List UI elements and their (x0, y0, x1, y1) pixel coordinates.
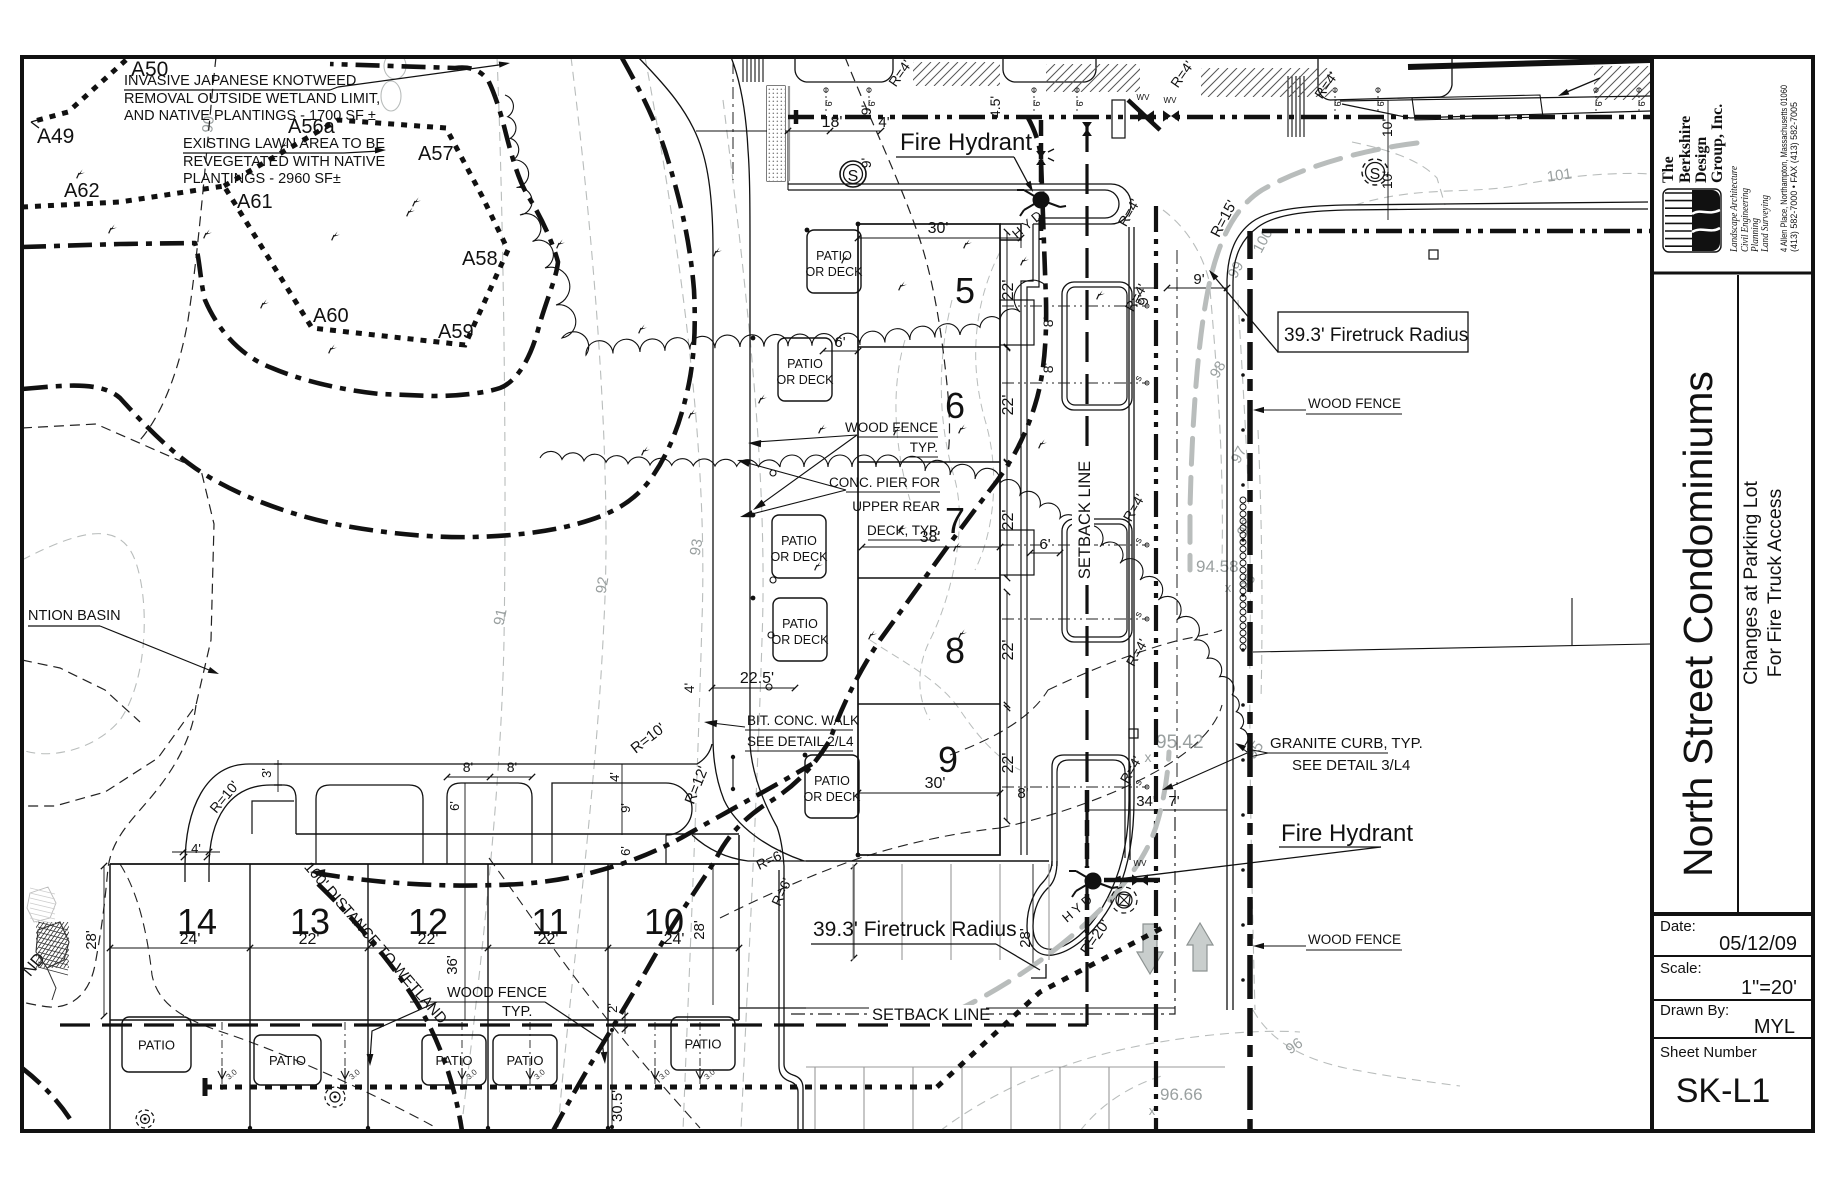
svg-text:PATIO: PATIO (816, 249, 852, 263)
svg-text:28': 28' (691, 920, 708, 940)
svg-text:39.3' Firetruck Radius: 39.3' Firetruck Radius (1284, 325, 1468, 346)
svg-text:22': 22' (1000, 510, 1017, 531)
svg-text:Date:: Date: (1660, 918, 1696, 935)
svg-text:OR DECK: OR DECK (771, 550, 829, 564)
svg-text:REMOVAL OUTSIDE WETLAND LIMIT,: REMOVAL OUTSIDE WETLAND LIMIT, (124, 91, 380, 107)
svg-text:8': 8' (463, 759, 473, 775)
svg-text:MYL: MYL (1754, 1016, 1795, 1038)
svg-text:4': 4' (681, 683, 697, 693)
svg-text:PATIO: PATIO (269, 1053, 306, 1068)
svg-text:10': 10' (1379, 119, 1395, 137)
svg-text:101: 101 (1546, 165, 1573, 185)
svg-text:96.66: 96.66 (1160, 1085, 1203, 1104)
svg-text:6': 6' (618, 846, 633, 856)
svg-text:22': 22' (1000, 280, 1017, 301)
svg-text:30': 30' (925, 775, 946, 792)
svg-text:3': 3' (259, 768, 274, 778)
svg-text:NTION BASIN: NTION BASIN (28, 608, 121, 624)
svg-text:22': 22' (299, 931, 320, 948)
svg-text:PATIO: PATIO (787, 357, 823, 371)
svg-text:DECK, TYP.: DECK, TYP. (867, 523, 940, 538)
svg-text:9': 9' (858, 105, 874, 115)
svg-text:4': 4' (191, 841, 201, 856)
svg-text:The: The (1660, 156, 1677, 183)
svg-text:SETBACK LINE: SETBACK LINE (872, 1006, 990, 1024)
svg-text:30': 30' (928, 220, 949, 237)
svg-text:OR DECK: OR DECK (804, 790, 862, 804)
svg-text:OR DECK: OR DECK (777, 373, 835, 387)
svg-text:22': 22' (538, 931, 559, 948)
svg-text:UPPER REAR: UPPER REAR (852, 499, 940, 514)
svg-text:22': 22' (1000, 753, 1017, 774)
svg-text:TYP.: TYP. (910, 440, 938, 455)
svg-text:22': 22' (418, 931, 439, 948)
svg-text:WOOD FENCE: WOOD FENCE (447, 985, 547, 1001)
svg-text:8': 8' (1017, 785, 1028, 802)
svg-text:10': 10' (1379, 171, 1395, 189)
svg-text:A59: A59 (438, 321, 474, 343)
svg-text:05/12/09: 05/12/09 (1719, 933, 1797, 955)
svg-text:TYP.: TYP. (502, 1004, 532, 1020)
svg-text:WOOD FENCE: WOOD FENCE (1308, 932, 1401, 947)
svg-text:WV: WV (1164, 96, 1178, 105)
svg-text:94.58: 94.58 (1196, 557, 1239, 576)
svg-text:93: 93 (687, 538, 707, 557)
svg-text:28': 28' (83, 930, 100, 950)
svg-text:Changes at Parking Lot: Changes at Parking Lot (1740, 481, 1762, 685)
svg-text:39.3' Firetruck Radius: 39.3' Firetruck Radius (813, 918, 1017, 941)
svg-text:PLANTINGS - 2960 SF±: PLANTINGS - 2960 SF± (183, 171, 341, 187)
svg-text:22': 22' (1000, 395, 1017, 416)
svg-text:INVASIVE JAPANESE KNOTWEED: INVASIVE JAPANESE KNOTWEED (124, 73, 356, 89)
svg-text:95.42: 95.42 (1156, 732, 1204, 753)
svg-text:Fire Hydrant: Fire Hydrant (1281, 820, 1413, 847)
svg-text:BIT. CONC. WALK: BIT. CONC. WALK (747, 713, 859, 728)
svg-text:6': 6' (447, 801, 462, 811)
svg-text:PATIO: PATIO (814, 774, 850, 788)
svg-text:A62: A62 (64, 180, 100, 202)
svg-text:OR DECK: OR DECK (806, 265, 864, 279)
svg-text:6': 6' (834, 334, 845, 351)
svg-text:A57: A57 (418, 143, 454, 165)
svg-text:22': 22' (1000, 640, 1017, 661)
svg-text:9': 9' (1193, 271, 1204, 288)
svg-text:PATIO: PATIO (684, 1037, 721, 1052)
svg-text:Sheet Number: Sheet Number (1660, 1044, 1757, 1061)
svg-text:4.5': 4.5' (987, 96, 1003, 118)
svg-text:Group, Inc.: Group, Inc. (1709, 104, 1726, 183)
svg-text:CONC. PIER FOR: CONC. PIER FOR (829, 475, 940, 490)
svg-text:6': 6' (1032, 99, 1042, 106)
svg-text:REVEGETATED WITH NATIVE: REVEGETATED WITH NATIVE (183, 154, 386, 170)
svg-text:SK-L1: SK-L1 (1676, 1072, 1771, 1110)
svg-text:1"=20': 1"=20' (1741, 977, 1797, 999)
svg-text:S: S (1370, 166, 1381, 183)
svg-text:5: 5 (955, 270, 975, 311)
svg-text:EXISTING LAWN AREA TO BE: EXISTING LAWN AREA TO BE (183, 136, 385, 152)
svg-text:Berkshire: Berkshire (1677, 116, 1694, 183)
svg-text:2': 2' (605, 1003, 620, 1013)
svg-text:WOOD FENCE: WOOD FENCE (845, 420, 938, 435)
svg-text:6': 6' (824, 99, 834, 106)
svg-text:S: S (848, 168, 859, 185)
svg-text:8': 8' (507, 759, 517, 775)
svg-text:A58: A58 (462, 248, 498, 270)
svg-text:6': 6' (1637, 99, 1647, 106)
svg-text:x: x (1145, 749, 1152, 765)
svg-text:WV: WV (1137, 93, 1151, 102)
svg-text:PATIO: PATIO (435, 1053, 472, 1068)
svg-text:WV: WV (1134, 859, 1148, 868)
svg-text:9': 9' (618, 803, 633, 813)
svg-text:WOOD FENCE: WOOD FENCE (1308, 396, 1401, 411)
svg-text:6': 6' (1594, 99, 1604, 106)
svg-text:OR DECK: OR DECK (772, 633, 830, 647)
svg-text:34': 34' (1136, 793, 1156, 810)
svg-text:4': 4' (607, 772, 622, 782)
svg-text:PATIO: PATIO (138, 1038, 175, 1053)
svg-text:6': 6' (1039, 536, 1050, 553)
svg-text:SETBACK LINE: SETBACK LINE (1076, 461, 1094, 579)
svg-text:SEE DETAIL 3/L4: SEE DETAIL 3/L4 (1292, 757, 1410, 774)
svg-text:Drawn By:: Drawn By: (1660, 1002, 1729, 1019)
svg-text:Design: Design (1693, 137, 1710, 183)
svg-text:9: 9 (938, 739, 958, 780)
svg-text:PATIO: PATIO (781, 534, 817, 548)
svg-text:x: x (1225, 580, 1232, 595)
svg-text:PATIO: PATIO (782, 617, 818, 631)
svg-text:PATIO: PATIO (506, 1053, 543, 1068)
svg-text:91: 91 (491, 607, 511, 627)
svg-text:A60: A60 (313, 305, 349, 327)
svg-text:6': 6' (1075, 99, 1085, 106)
svg-text:4 Allen Place, Northampton,: 4 Allen Place, Northampton, Massachusett… (1779, 85, 1789, 252)
svg-text:Scale:: Scale: (1660, 960, 1702, 977)
svg-text:Landscape Architecture: Landscape Architecture (1729, 166, 1740, 253)
svg-text:6: 6 (945, 385, 965, 426)
svg-text:(413) 582-7000 • FAX (413): (413) 582-7000 • FAX (413) 582-7005 (1789, 102, 1799, 252)
svg-text:SEE DETAIL 2/L4: SEE DETAIL 2/L4 (747, 734, 854, 749)
svg-text:92: 92 (593, 576, 613, 595)
svg-text:Land Surveying: Land Surveying (1760, 195, 1771, 253)
svg-text:Fire Hydrant: Fire Hydrant (900, 129, 1032, 156)
svg-text:A61: A61 (237, 191, 273, 213)
svg-text:8: 8 (945, 630, 965, 671)
svg-text:For Fire Truck Access: For Fire Truck Access (1764, 488, 1786, 677)
svg-text:A49: A49 (37, 125, 74, 148)
svg-text:North Street Condominiums: North Street Condominiums (1675, 371, 1721, 877)
svg-text:24': 24' (180, 931, 201, 948)
svg-text:28': 28' (1017, 928, 1034, 948)
svg-text:AND NATIVE PLANTINGS - 1700 SF: AND NATIVE PLANTINGS - 1700 SF ± (124, 108, 376, 124)
svg-text:7': 7' (1168, 793, 1179, 810)
svg-text:GRANITE CURB, TYP.: GRANITE CURB, TYP. (1270, 735, 1423, 752)
svg-text:36': 36' (444, 955, 461, 975)
